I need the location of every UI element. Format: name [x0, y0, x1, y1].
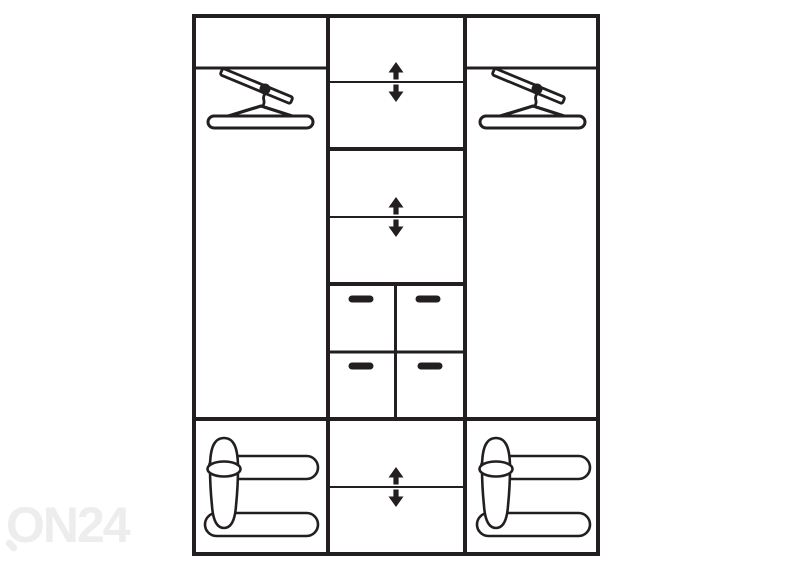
wardrobe-diagram: ON24	[0, 0, 792, 566]
drawer-handle-icon	[418, 363, 443, 370]
drawer-handle-icon	[349, 363, 374, 370]
watermark-text: ON24	[6, 497, 129, 553]
drawer-handle-icon	[416, 296, 441, 303]
drawer-handle-icon	[349, 296, 374, 303]
brand-watermark: ON24	[6, 499, 129, 553]
wardrobe-schematic	[0, 0, 792, 566]
